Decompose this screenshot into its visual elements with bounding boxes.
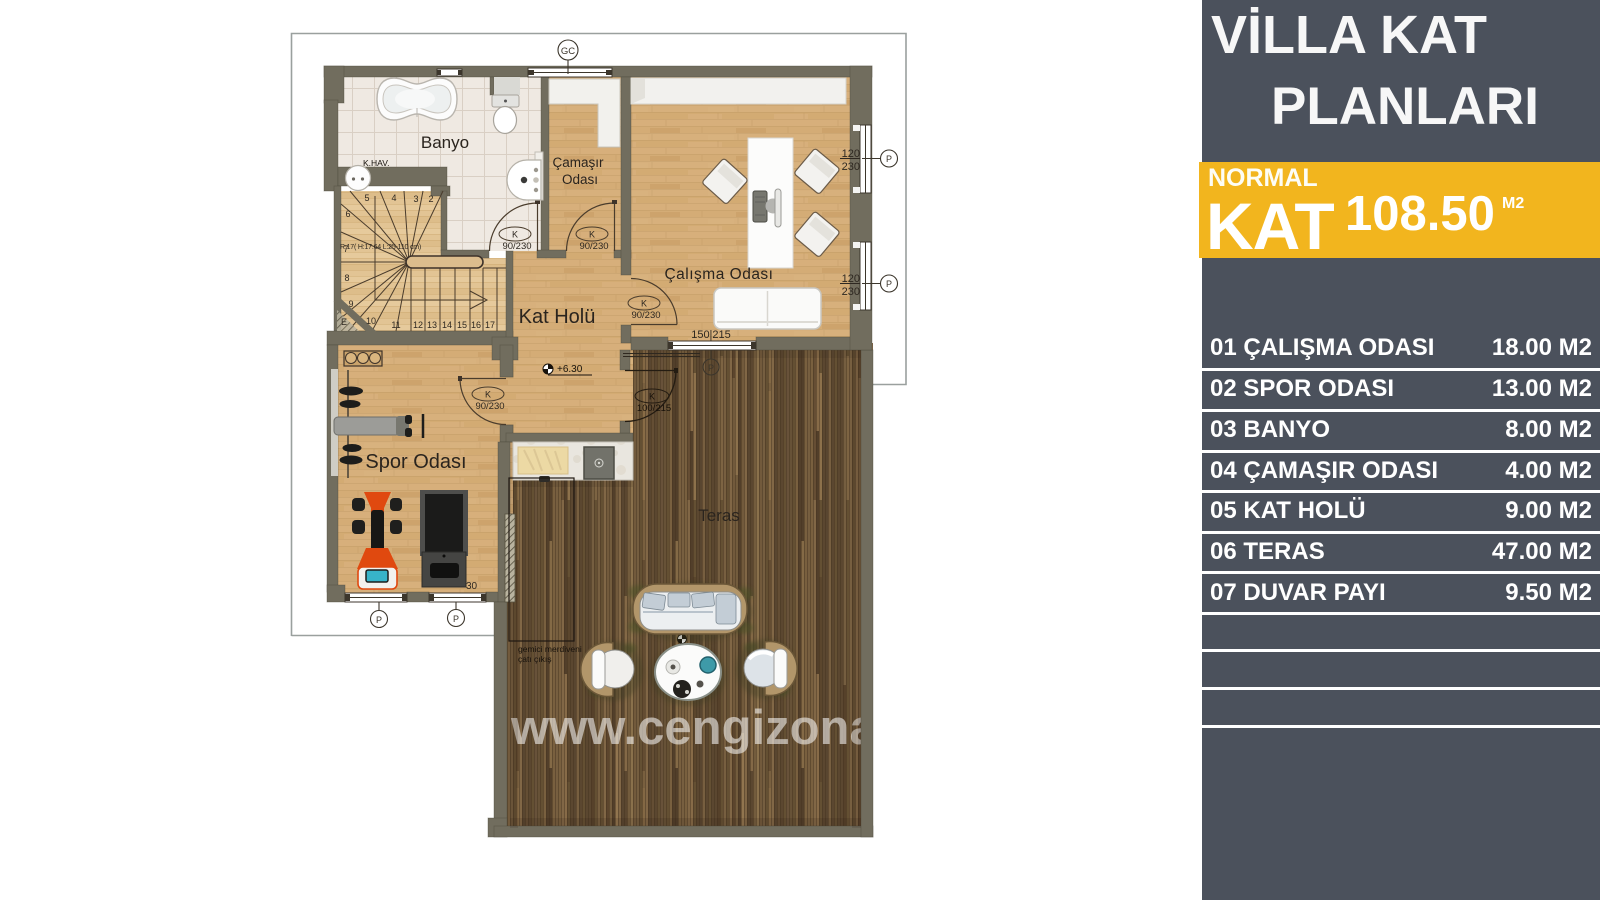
svg-text:çatı çıkış: çatı çıkış <box>518 654 552 664</box>
svg-text:P: P <box>453 614 459 624</box>
svg-text:P: P <box>886 279 892 289</box>
svg-text:15: 15 <box>457 320 467 330</box>
svg-text:17: 17 <box>485 320 495 330</box>
svg-text:13: 13 <box>427 320 437 330</box>
svg-text:Çamaşır: Çamaşır <box>552 155 604 170</box>
svg-text:K: K <box>512 230 518 240</box>
svg-text:10: 10 <box>366 316 376 326</box>
svg-text:5: 5 <box>364 193 369 203</box>
svg-text:3: 3 <box>413 194 418 204</box>
svg-text:9: 9 <box>348 299 353 309</box>
svg-text:12: 12 <box>413 320 423 330</box>
svg-text:90/230: 90/230 <box>475 401 504 412</box>
svg-text:14: 14 <box>442 320 452 330</box>
svg-text:90/230: 90/230 <box>579 241 608 252</box>
svg-text:8: 8 <box>344 273 349 283</box>
svg-text:Teras: Teras <box>698 506 740 525</box>
svg-text:gemici merdiveni: gemici merdiveni <box>518 644 582 654</box>
svg-text:Banyo: Banyo <box>421 133 469 152</box>
svg-text:P: P <box>376 615 382 625</box>
svg-text:K: K <box>649 392 655 402</box>
svg-text:R:17( H:17.64 L:25-110 cm): R:17( H:17.64 L:25-110 cm) <box>340 244 421 251</box>
svg-text:11: 11 <box>391 320 400 330</box>
svg-text:Çalışma Odası: Çalışma Odası <box>664 266 773 283</box>
svg-text:E: E <box>341 317 347 327</box>
svg-text:Kat Holü: Kat Holü <box>519 306 596 328</box>
svg-text:Odası: Odası <box>562 172 598 187</box>
svg-text:P: P <box>708 363 714 373</box>
svg-text:6: 6 <box>345 209 350 219</box>
svg-text:P: P <box>886 154 892 164</box>
svg-text:150|215: 150|215 <box>691 329 731 341</box>
svg-text:230: 230 <box>842 161 860 173</box>
svg-text:90/230: 90/230 <box>631 310 660 321</box>
svg-text:230: 230 <box>842 286 860 298</box>
svg-text:4: 4 <box>391 193 396 203</box>
svg-text:+6.30: +6.30 <box>557 364 583 375</box>
svg-text:100/215: 100/215 <box>637 403 671 414</box>
svg-text:90/230: 90/230 <box>502 241 531 252</box>
svg-text:K: K <box>641 299 647 309</box>
svg-text:16: 16 <box>471 320 481 330</box>
svg-text:K: K <box>589 230 595 240</box>
svg-text:2: 2 <box>428 194 433 204</box>
svg-text:GC: GC <box>561 46 575 57</box>
svg-text:K.HAV.: K.HAV. <box>363 158 389 168</box>
svg-text:30: 30 <box>466 581 478 592</box>
svg-text:K: K <box>485 390 491 400</box>
svg-text:Spor Odası: Spor Odası <box>365 451 466 473</box>
